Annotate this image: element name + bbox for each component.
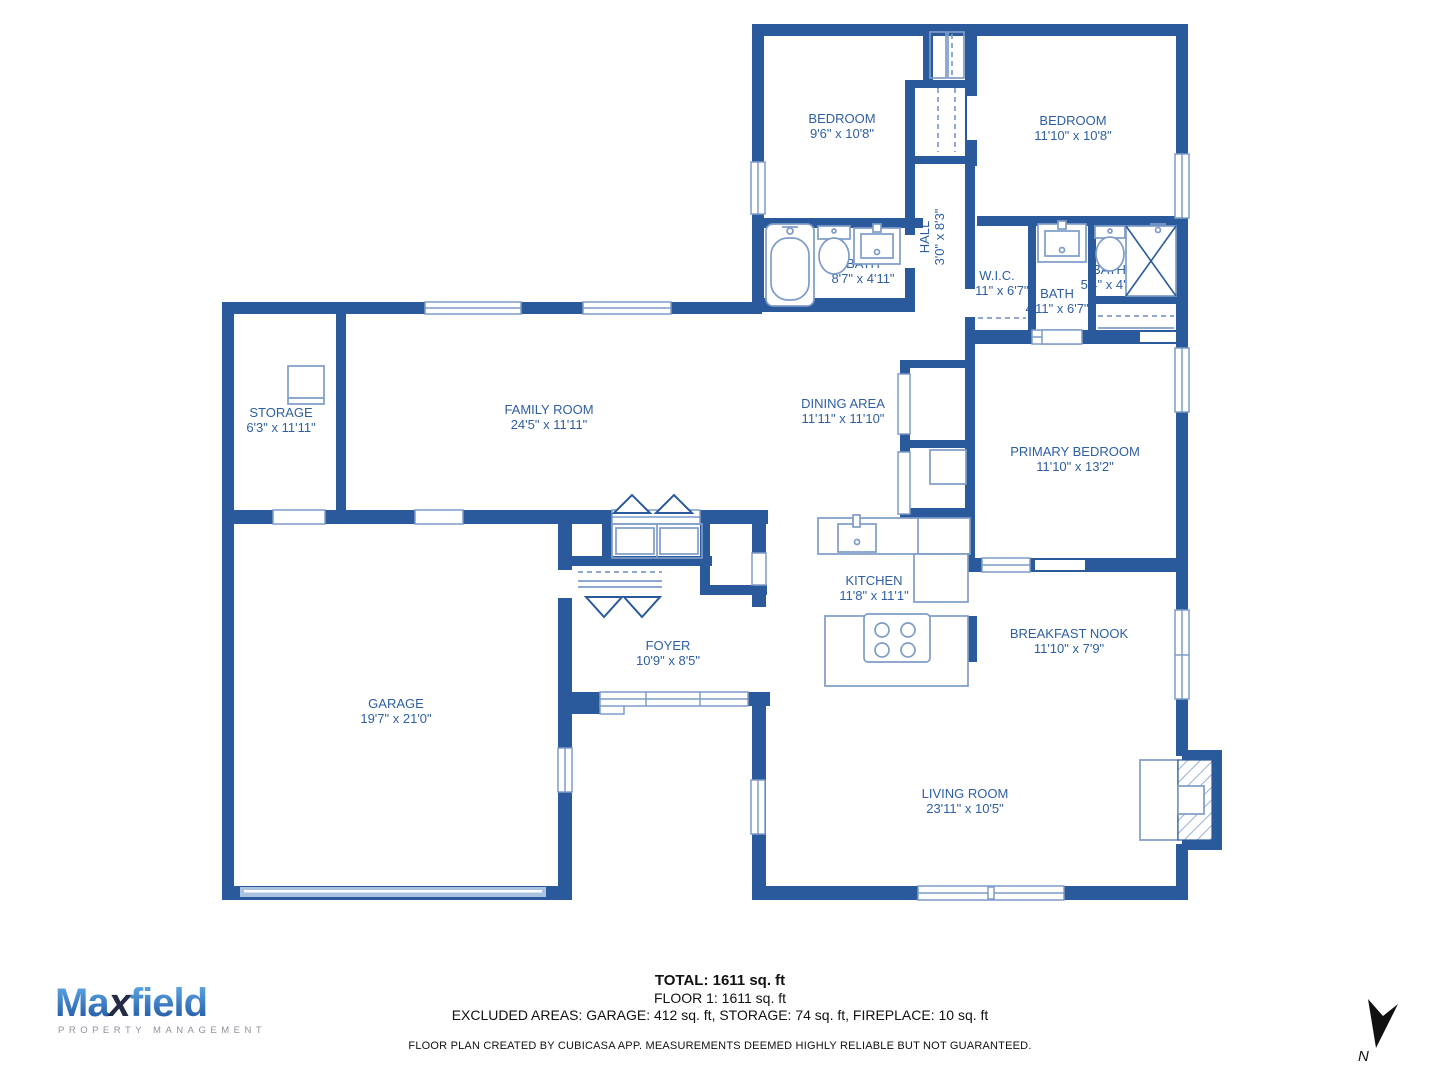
room-name: PRIMARY BEDROOM [1010,444,1140,459]
room-name: STORAGE [246,405,315,420]
window-family-2 [583,302,671,314]
window-nook-right [1175,610,1189,699]
room-label-bath-2: BATH 4'11" x 6'7" [1025,286,1088,316]
window-living-bottom [918,886,1064,900]
room-label-kitchen: KITCHEN 11'8" x 11'1" [839,573,908,603]
room-name: KITCHEN [839,573,908,588]
room-dims: 11'10" x 10'8" [1034,128,1112,143]
room-dims: 5'4" x 4'3" [1081,277,1138,292]
room-name: FAMILY ROOM [504,402,593,417]
room-label-foyer: FOYER 10'9" x 8'5" [636,638,700,668]
compass-label: N [1358,1048,1369,1065]
window-bedroom1-left [751,162,765,214]
room-name: W.I.C. [965,268,1028,283]
door-storage [273,510,325,524]
room-dims: 4'11" x 6'7" [1025,301,1088,316]
room-label-breakfast-nook: BREAKFAST NOOK 11'10" x 7'9" [1010,626,1128,656]
door-primary-top [1042,330,1082,344]
windows [273,154,1189,900]
window-foyer-closet [752,553,766,585]
room-name: BEDROOM [808,111,875,126]
room-name: GARAGE [360,696,431,711]
room-name: BREAKFAST NOOK [1010,626,1128,641]
front-entry-door [600,692,748,706]
door-chevrons [586,495,692,617]
room-name: BEDROOM [1034,113,1112,128]
room-dims: 24'5" x 11'11" [504,417,593,432]
floor-plan-drawing [0,0,1440,1080]
window-primary-top [1032,330,1080,344]
room-name: FOYER [636,638,700,653]
room-dims: 19'7" x 21'0" [360,711,431,726]
room-label-primary-bedroom: PRIMARY BEDROOM 11'10" x 13'2" [1010,444,1140,474]
window-family-1 [425,302,521,314]
door-closet-dining-1 [898,374,910,434]
room-label-bedroom-2: BEDROOM 11'10" x 10'8" [1034,113,1112,143]
logo-part-x: x [109,981,130,1025]
room-label-storage: STORAGE 6'3" x 11'11" [246,405,315,435]
room-label-living-room: LIVING ROOM 23'11" x 10'5" [922,786,1009,816]
water-heater-icon [288,366,324,404]
room-name: HALL [917,209,932,266]
refrigerator-icon [914,554,968,602]
window-primary-right [1175,348,1189,412]
floor-plan-page: BEDROOM 9'6" x 10'8" BEDROOM 11'10" x 10… [0,0,1440,1080]
door-family-garage [415,510,463,524]
kitchen-island [825,616,968,686]
room-dims: 8'7" x 4'11" [831,271,894,286]
room-label-hall: HALL 3'0" x 8'3" [917,209,947,266]
closet-appliance-icon [930,450,966,484]
room-name: BATH [1081,262,1138,277]
kitchen-counter [818,515,970,554]
room-dims: 11'10" x 7'9" [1010,641,1128,656]
room-label-bath-1: BATH 8'7" x 4'11" [831,256,894,286]
room-dims: 11'11" x 11'10" [801,411,885,426]
logo-wordmark: Maxfield [55,984,266,1022]
room-name: BATH [1025,286,1088,301]
room-label-dining-area: DINING AREA 11'11" x 11'10" [801,396,885,426]
room-dims: 9'6" x 10'8" [808,126,875,141]
disclaimer-text: FLOOR PLAN CREATED BY CUBICASA APP. MEAS… [0,1040,1440,1053]
logo-tagline: PROPERTY MANAGEMENT [55,1025,266,1036]
room-label-wic: W.I.C. 2'11" x 6'7" [965,268,1028,298]
room-dims: 11'10" x 13'2" [1010,459,1140,474]
fireplace-icon [1140,750,1222,850]
door-garage-side [558,748,572,792]
logo-part-ma: Ma [55,981,109,1025]
garage-door [240,887,546,897]
room-dims: 11'8" x 11'1" [839,588,908,603]
room-dims: 10'9" x 8'5" [636,653,700,668]
room-name: DINING AREA [801,396,885,411]
garage-side-step [600,702,624,714]
room-name: LIVING ROOM [922,786,1009,801]
room-dims: 2'11" x 6'7" [965,283,1028,298]
room-dims: 3'0" x 8'3" [932,209,947,266]
bathtub-icon [766,224,814,306]
window-primary-bottom [982,558,1030,572]
door-foyer-closet-top [612,510,700,524]
stove-icon [864,614,930,662]
maxfield-logo: Maxfield PROPERTY MANAGEMENT [55,984,266,1036]
room-dims: 23'11" x 10'5" [922,801,1009,816]
logo-part-field: field [130,981,207,1025]
room-name: BATH [831,256,894,271]
room-label-garage: GARAGE 19'7" x 21'0" [360,696,431,726]
room-dims: 6'3" x 11'11" [246,420,315,435]
door-closet-dining-2 [898,452,910,514]
room-label-bath-3: BATH 5'4" x 4'3" [1081,262,1138,292]
window-bedroom2-right [1175,154,1189,218]
sink-icon [1038,221,1086,262]
room-label-bedroom-1: BEDROOM 9'6" x 10'8" [808,111,875,141]
window-living-left [751,780,765,834]
room-label-family-room: FAMILY ROOM 24'5" x 11'11" [504,402,593,432]
